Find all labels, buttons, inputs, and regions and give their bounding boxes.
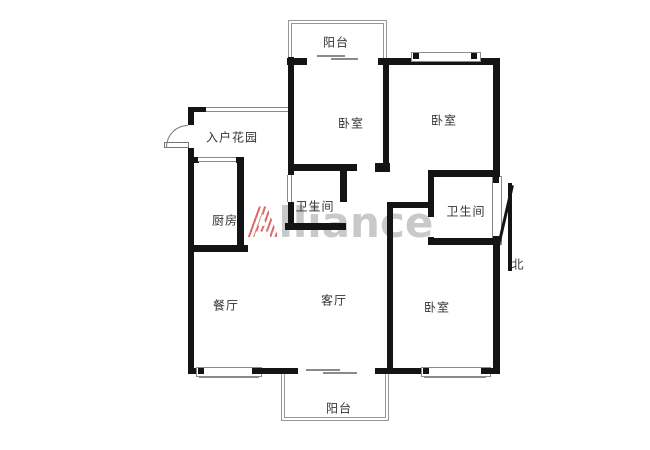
wall-segment — [387, 202, 433, 208]
window-end-cap — [198, 368, 204, 374]
wall-segment — [237, 157, 244, 245]
wall-segment — [188, 245, 248, 252]
wall-segment — [375, 163, 390, 172]
sliding-door-line — [317, 55, 345, 57]
window-sill-line — [424, 377, 486, 378]
room-label-dining: 餐厅 — [213, 297, 239, 314]
entry-door-swing-arc — [166, 125, 188, 147]
floorplan-canvas: Alliance — [0, 0, 650, 450]
room-label-bedroom-top-right: 卧室 — [431, 112, 457, 129]
wall-segment — [428, 170, 434, 217]
wall-segment — [428, 170, 500, 177]
wall-segment — [188, 148, 194, 374]
sliding-door-line — [323, 372, 357, 374]
room-label-bathroom-right: 卫生间 — [446, 203, 485, 220]
wall-segment — [387, 202, 393, 374]
wall-segment — [258, 368, 298, 374]
compass-label: 北 — [511, 256, 524, 273]
room-label-entry-garden: 入户花园 — [206, 129, 258, 146]
room-label-bedroom-top-left: 卧室 — [338, 115, 364, 132]
window-end-cap — [413, 53, 419, 59]
wall-segment — [188, 107, 207, 112]
kitchen-door-line — [198, 157, 237, 162]
wall-segment — [383, 60, 389, 172]
wall-segment — [287, 58, 307, 65]
entry-garden-top-line — [206, 107, 288, 112]
wall-segment — [493, 242, 500, 374]
window-end-cap — [423, 368, 429, 374]
bathroom-left-glass-line — [287, 175, 292, 202]
wall-segment — [493, 59, 500, 177]
room-label-kitchen: 厨房 — [212, 212, 238, 229]
wall-segment — [375, 368, 423, 374]
room-label-balcony-top: 阳台 — [323, 34, 349, 51]
room-label-bedroom-bottom-right: 卧室 — [424, 299, 450, 316]
window-end-cap — [493, 177, 499, 183]
wall-segment — [428, 238, 500, 245]
sliding-door-line — [331, 58, 358, 60]
room-label-balcony-bottom: 阳台 — [326, 400, 352, 417]
window-sill-line — [199, 377, 259, 378]
wall-segment — [340, 164, 347, 202]
room-label-bathroom-left: 卫生间 — [295, 198, 334, 215]
wall-segment — [288, 57, 294, 175]
wall-segment — [285, 223, 346, 230]
room-label-living: 客厅 — [321, 292, 347, 309]
sliding-door-line — [306, 369, 340, 371]
wall-segment — [486, 368, 500, 374]
watermark-letter-a: A — [246, 198, 279, 247]
window-end-cap — [471, 53, 477, 59]
